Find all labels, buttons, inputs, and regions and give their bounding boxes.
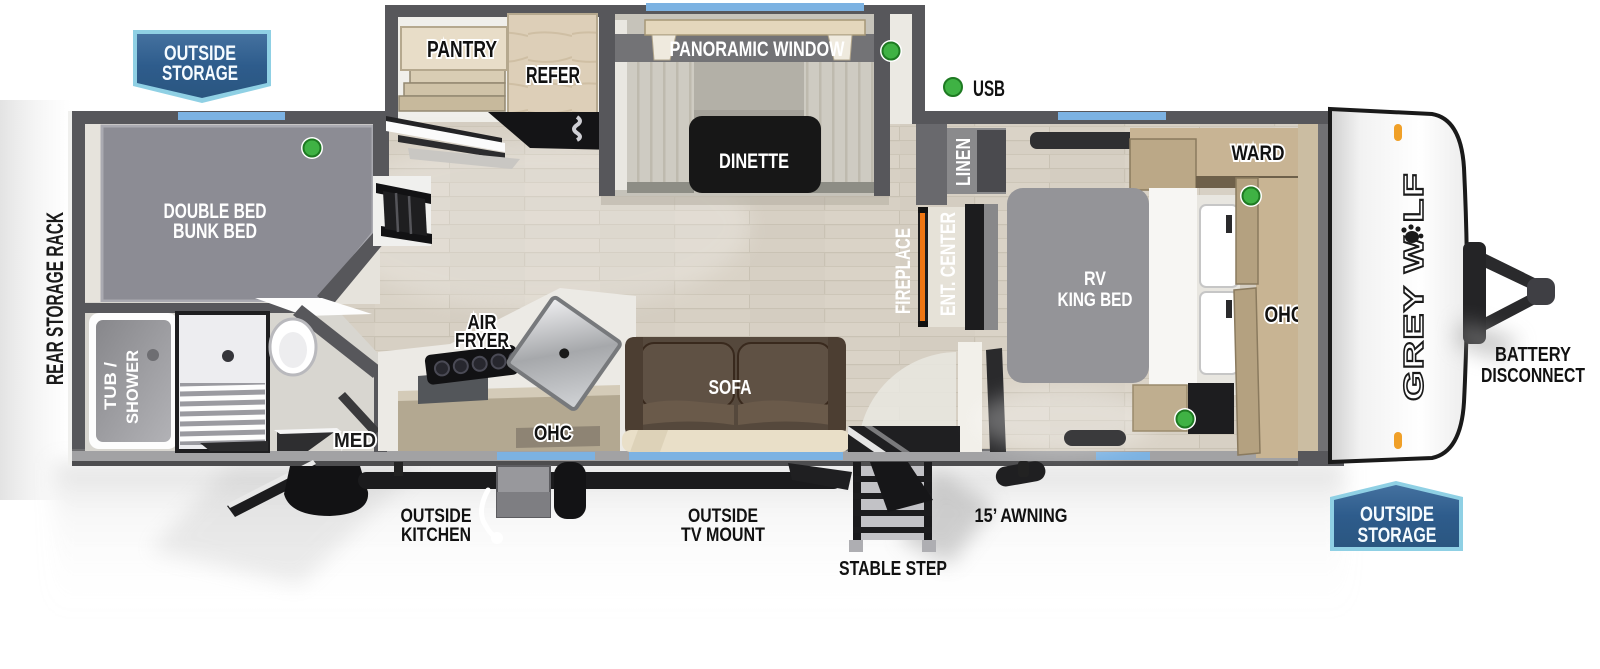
svg-text:ENT. CENTER: ENT. CENTER [937,212,960,316]
svg-text:KING BED: KING BED [1058,290,1133,311]
svg-text:BUNK BED: BUNK BED [173,220,257,243]
svg-text:KITCHEN: KITCHEN [401,525,471,546]
svg-text:STORAGE: STORAGE [1358,524,1437,547]
svg-text:BATTERY: BATTERY [1495,344,1572,366]
svg-text:OHC: OHC [534,422,572,445]
svg-text:TUB /: TUB / [101,362,120,410]
svg-text:DINETTE: DINETTE [719,150,789,173]
svg-text:WARD: WARD [1232,142,1285,165]
svg-text:OUTSIDE: OUTSIDE [688,506,758,527]
svg-text:GREY W LF: GREY W LF [1398,172,1429,401]
svg-text:REAR STORAGE RACK: REAR STORAGE RACK [42,212,69,385]
svg-text:OUTSIDE: OUTSIDE [401,506,472,527]
svg-text:TV MOUNT: TV MOUNT [681,525,765,546]
svg-text:OHC: OHC [1265,302,1304,327]
svg-text:USB: USB [973,76,1005,101]
svg-text:LINEN: LINEN [953,138,975,186]
svg-text:FIREPLACE: FIREPLACE [892,228,915,314]
svg-text:SOFA: SOFA [709,377,752,399]
svg-text:STABLE STEP: STABLE STEP [839,558,947,580]
svg-text:SHOWER: SHOWER [123,350,142,424]
svg-text:RV: RV [1084,269,1106,290]
svg-text:DISCONNECT: DISCONNECT [1481,365,1585,387]
svg-text:REFER: REFER [526,62,580,88]
svg-text:OUTSIDE: OUTSIDE [1360,503,1434,526]
svg-text:STORAGE: STORAGE [162,62,238,85]
svg-text:MED: MED [334,430,376,452]
svg-text:PANORAMIC WINDOW: PANORAMIC WINDOW [670,38,845,61]
svg-text:PANTRY: PANTRY [427,36,497,62]
svg-text:FRYER: FRYER [455,330,509,352]
svg-text:15’ AWNING: 15’ AWNING [975,506,1068,527]
